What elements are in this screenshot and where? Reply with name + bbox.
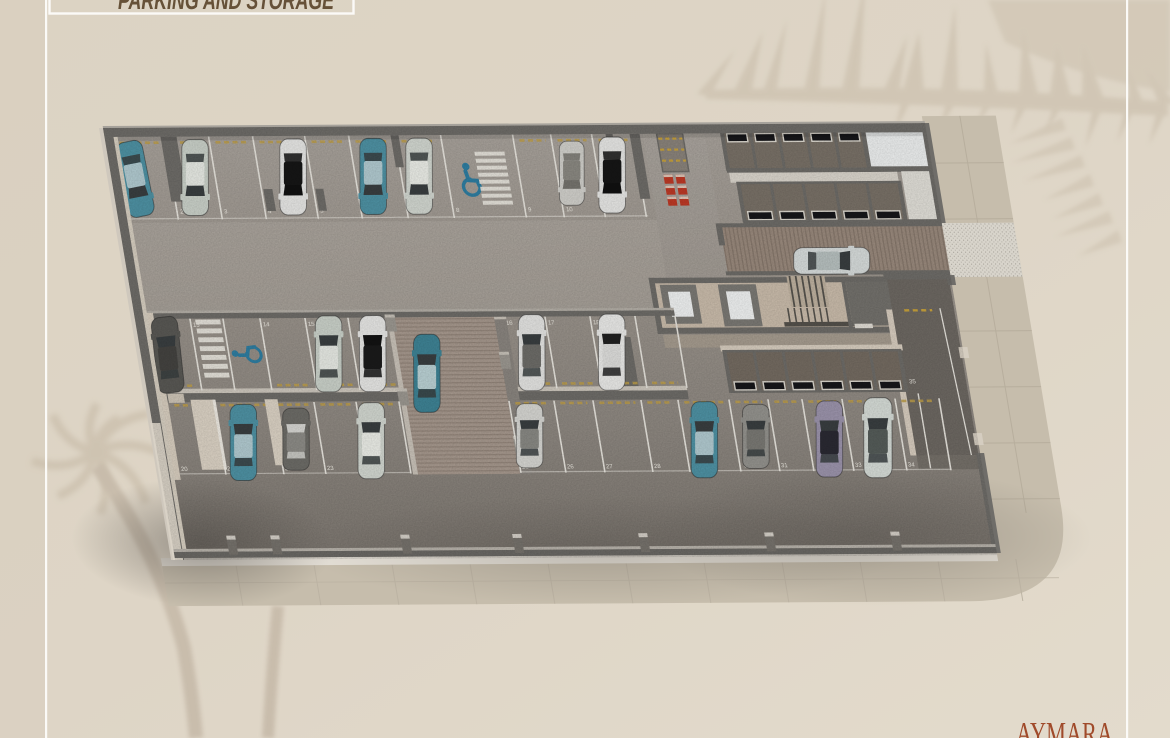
svg-text:PARKING AND STORAGE: PARKING AND STORAGE [118,0,334,15]
svg-text:AYMARA: AYMARA [1016,715,1113,738]
